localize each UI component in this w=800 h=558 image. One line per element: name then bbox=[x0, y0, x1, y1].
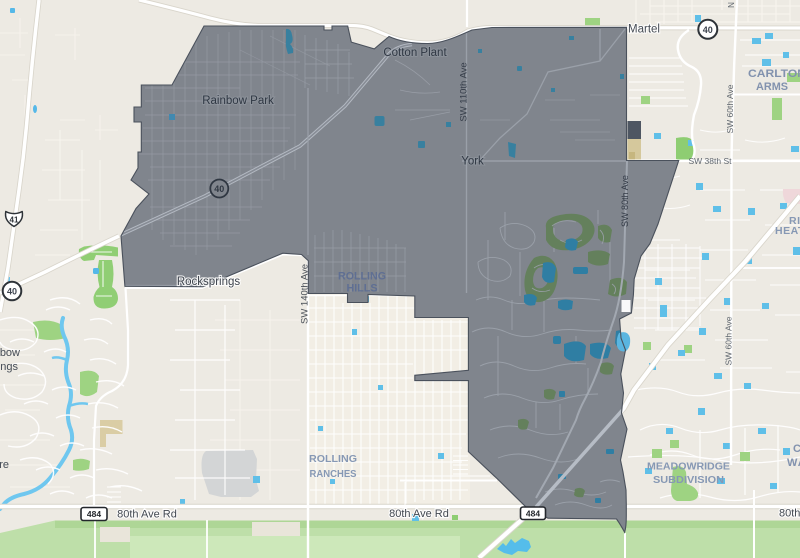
svg-text:C: C bbox=[793, 443, 800, 455]
svg-text:41: 41 bbox=[10, 216, 19, 225]
svg-text:40: 40 bbox=[214, 184, 224, 194]
svg-text:80th Ave Rd: 80th Ave Rd bbox=[389, 508, 449, 520]
svg-text:80th Ave Rd: 80th Ave Rd bbox=[117, 509, 177, 521]
svg-text:SW 60th Ave: SW 60th Ave bbox=[725, 84, 735, 133]
svg-text:SW 60th Ave: SW 60th Ave bbox=[724, 316, 734, 365]
svg-text:Martel: Martel bbox=[628, 24, 660, 36]
svg-text:SW 38th St: SW 38th St bbox=[689, 156, 733, 166]
svg-text:WA: WA bbox=[787, 457, 800, 469]
svg-text:HEATH: HEATH bbox=[775, 225, 800, 237]
svg-text:York: York bbox=[461, 156, 484, 168]
svg-text:Cotton Plant: Cotton Plant bbox=[383, 47, 447, 59]
svg-text:40: 40 bbox=[703, 25, 713, 35]
svg-text:40: 40 bbox=[7, 287, 17, 297]
svg-text:HILLS: HILLS bbox=[347, 283, 378, 295]
svg-text:ngs: ngs bbox=[0, 361, 18, 373]
svg-text:bow: bow bbox=[0, 347, 20, 359]
svg-text:484: 484 bbox=[87, 509, 101, 519]
svg-text:SW 80th Ave: SW 80th Ave bbox=[620, 175, 630, 227]
svg-text:Rainbow Park: Rainbow Park bbox=[202, 95, 274, 107]
svg-text:RANCHES: RANCHES bbox=[310, 468, 357, 480]
svg-text:ROLLING: ROLLING bbox=[338, 271, 386, 283]
svg-text:80th Av: 80th Av bbox=[779, 508, 800, 520]
svg-text:ROLLING: ROLLING bbox=[309, 453, 357, 465]
svg-text:SUBDIVISION: SUBDIVISION bbox=[653, 474, 724, 486]
svg-text:CARLTON: CARLTON bbox=[748, 68, 800, 80]
svg-text:SW 140th Ave: SW 140th Ave bbox=[300, 264, 311, 324]
svg-text:MEADOWRIDGE: MEADOWRIDGE bbox=[647, 461, 730, 473]
svg-text:ARMS: ARMS bbox=[756, 81, 788, 93]
svg-text:N: N bbox=[727, 2, 736, 8]
svg-text:484: 484 bbox=[526, 509, 540, 519]
svg-text:Rocksprings: Rocksprings bbox=[177, 276, 241, 288]
svg-text:re: re bbox=[0, 459, 9, 471]
svg-text:SW 110th Ave: SW 110th Ave bbox=[459, 62, 470, 121]
